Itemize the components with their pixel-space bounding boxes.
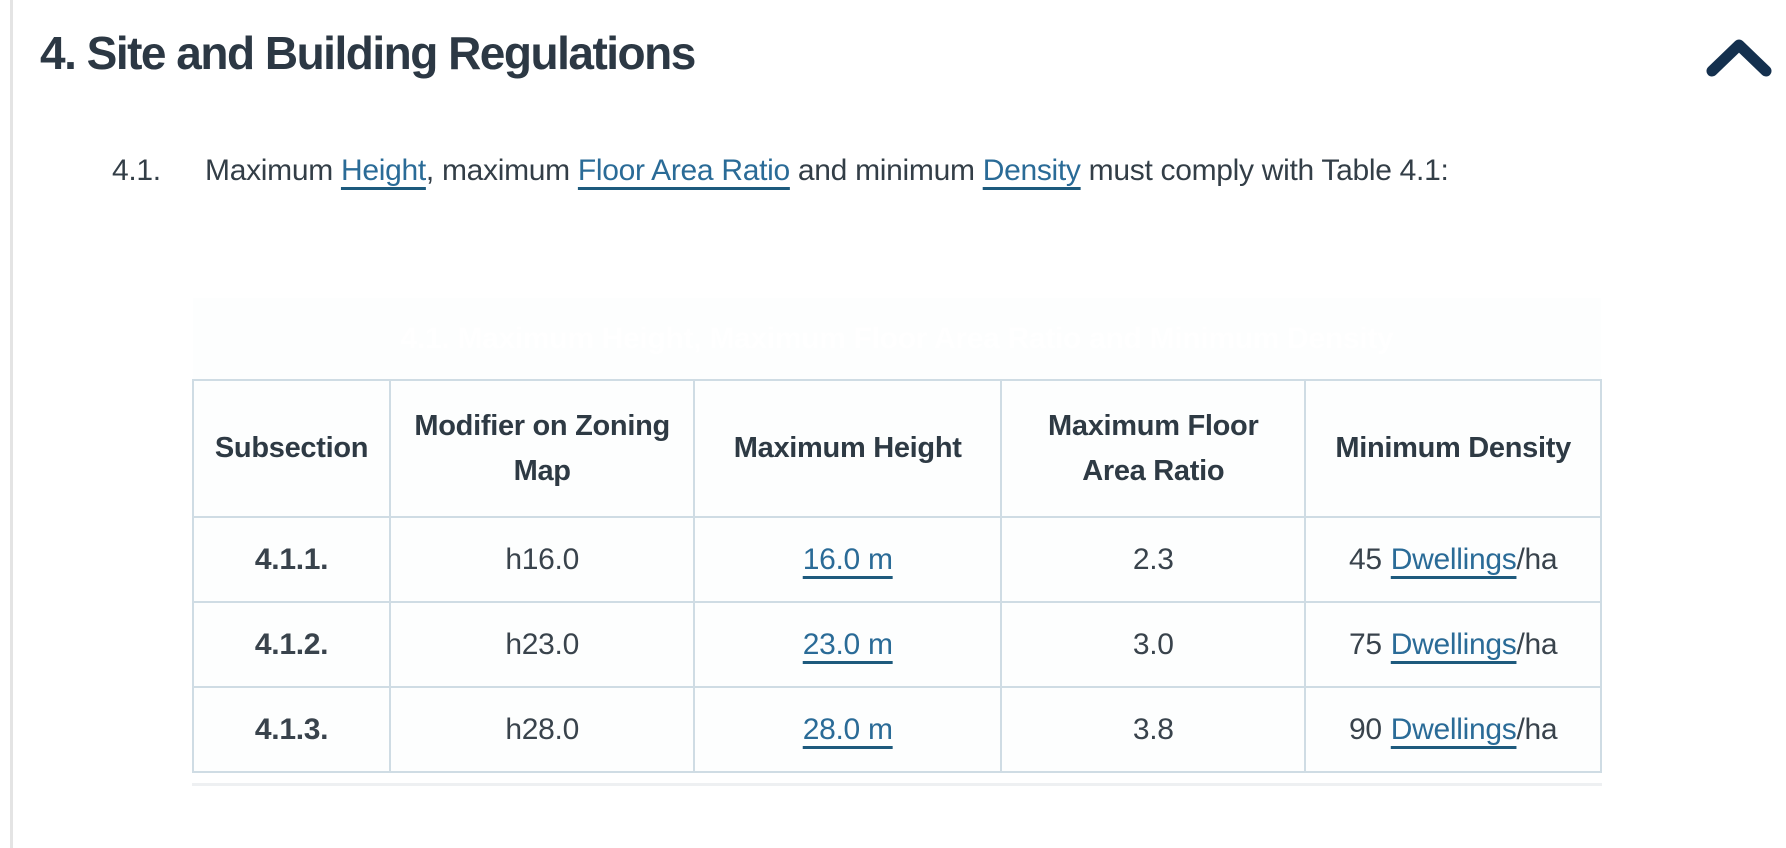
min-density-cell: 90Dwellings/ha [1305, 687, 1601, 772]
max-height-cell: 16.0 m [694, 517, 1001, 602]
modifier-cell: h28.0 [390, 687, 694, 772]
density-value: 75 [1349, 628, 1382, 661]
subsection-cell: 4.1.1. [193, 517, 390, 602]
modifier-cell: h16.0 [390, 517, 694, 602]
clause-4-1: 4.1.Maximum Height, maximum Floor Area R… [112, 150, 1672, 192]
column-header-min-density: Minimum Density [1305, 380, 1601, 517]
max-height-link[interactable]: 16.0 m [803, 543, 893, 576]
max-height-link[interactable]: 23.0 m [803, 628, 893, 661]
table-row: 4.1.1. h16.0 16.0 m 2.3 45Dwellings/ha [193, 517, 1601, 602]
regulations-table: 4.1. Maximum Height, Maximum Floor Area … [192, 298, 1602, 773]
clause-text-segment: , maximum [426, 154, 578, 187]
content-left-border [10, 0, 13, 848]
density-value: 90 [1349, 713, 1382, 746]
clause-text-segment: Maximum [205, 154, 341, 187]
section-heading: 4. Site and Building Regulations [40, 26, 695, 80]
clause-number: 4.1. [112, 150, 205, 192]
min-density-cell: 75Dwellings/ha [1305, 602, 1601, 687]
min-density-cell: 45Dwellings/ha [1305, 517, 1601, 602]
subsection-cell: 4.1.2. [193, 602, 390, 687]
dwellings-link[interactable]: Dwellings [1391, 628, 1517, 661]
floor-area-ratio-link[interactable]: Floor Area Ratio [578, 154, 790, 187]
density-unit: /ha [1516, 543, 1557, 576]
density-unit: /ha [1516, 628, 1557, 661]
floor-area-ratio-cell: 3.0 [1001, 602, 1305, 687]
max-height-cell: 23.0 m [694, 602, 1001, 687]
modifier-cell: h23.0 [390, 602, 694, 687]
column-header-modifier: Modifier on Zoning Map [390, 380, 694, 517]
dwellings-link[interactable]: Dwellings [1391, 543, 1517, 576]
clause-text-segment: must comply with Table 4.1: [1081, 154, 1449, 187]
clause-text: Maximum Height, maximum Floor Area Ratio… [205, 154, 1449, 187]
density-unit: /ha [1516, 713, 1557, 746]
table-row: 4.1.2. h23.0 23.0 m 3.0 75Dwellings/ha [193, 602, 1601, 687]
column-header-subsection: Subsection [193, 380, 390, 517]
subsection-cell: 4.1.3. [193, 687, 390, 772]
table-title: 4.1. Maximum Height, Maximum Floor Area … [193, 298, 1601, 380]
dwellings-link[interactable]: Dwellings [1391, 713, 1517, 746]
height-link[interactable]: Height [341, 154, 426, 187]
density-value: 45 [1349, 543, 1382, 576]
table-header-row: Subsection Modifier on Zoning Map Maximu… [193, 380, 1601, 517]
max-height-link[interactable]: 28.0 m [803, 713, 893, 746]
table-row: 4.1.3. h28.0 28.0 m 3.8 90Dwellings/ha [193, 687, 1601, 772]
column-header-max-height: Maximum Height [694, 380, 1001, 517]
floor-area-ratio-cell: 2.3 [1001, 517, 1305, 602]
collapse-section-button[interactable] [1704, 34, 1774, 82]
table-bottom-shadow [192, 783, 1602, 786]
chevron-up-icon [1704, 34, 1774, 82]
column-header-floor-area-ratio: Maximum Floor Area Ratio [1001, 380, 1305, 517]
floor-area-ratio-cell: 3.8 [1001, 687, 1305, 772]
max-height-cell: 28.0 m [694, 687, 1001, 772]
regulations-page: 4. Site and Building Regulations 4.1.Max… [0, 0, 1786, 848]
table-title-row: 4.1. Maximum Height, Maximum Floor Area … [193, 298, 1601, 380]
density-link[interactable]: Density [983, 154, 1081, 187]
clause-text-segment: and minimum [790, 154, 983, 187]
